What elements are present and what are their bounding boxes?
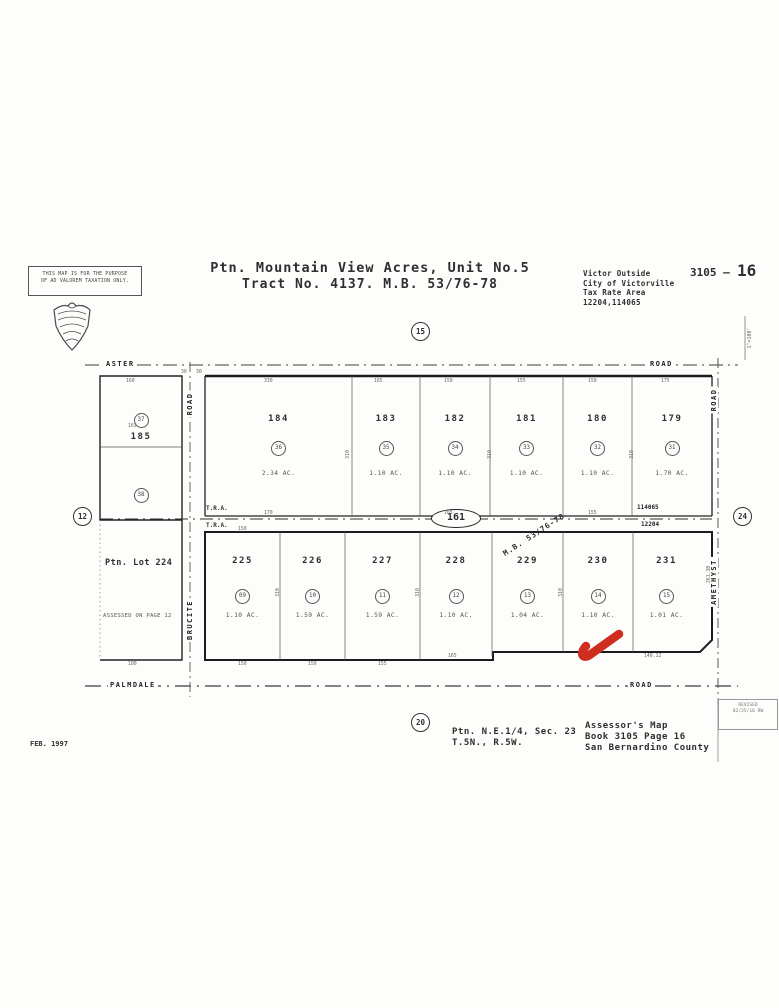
road-label-brucite-road: ROAD [186,391,194,418]
parcel-179: 179 31 1.70 AC. [632,376,712,516]
parcel-227: 227 11 1.59 AC. [345,532,420,655]
disclaimer-box: THIS MAP IS FOR THE PURPOSE OF AD VALORE… [28,266,142,296]
parcel-lot-number: 230 [563,556,633,566]
disclaimer-line2: OF AD VALOREM TAXATION ONLY. [29,278,141,285]
parcel-area: 1.10 AC. [352,470,420,477]
assessor-line1: Assessor's Map [585,721,709,732]
scale-note: 1"=100' [747,327,753,348]
assessor-map-page: THIS MAP IS FOR THE PURPOSE OF AD VALORE… [0,0,779,1008]
parcel-225: 225 09 1.10 AC. [205,532,280,655]
parcel-pin: 14 [591,589,606,604]
parcel-lot-number: 231 [633,556,700,566]
parcel-pin: 34 [448,441,463,456]
parcel-area: 1.59 AC. [280,612,345,619]
county-seal [54,303,90,350]
parcel-area: 1.04 AC. [492,612,563,619]
parcel-pin: 12 [449,589,464,604]
road-label-amethyst: AMETHYST [710,557,718,607]
road-label-palmdale-road: ROAD [628,681,655,689]
tax-line4: 12204,114065 [583,298,675,308]
parcel-lot-number: 183 [352,414,420,424]
parcel-lot-number: 229 [492,556,563,566]
parcel-area: 1.10 AC. [420,470,490,477]
parcel-lot-number: 180 [563,414,632,424]
section-ref-line1: Ptn. N.E.1/4, Sec. 23 [452,727,576,738]
road-label-aster-road: ROAD [648,360,675,368]
parcel-228: 228 12 1.10 AC. [420,532,492,655]
book-page-prefix: 3105 – [690,266,730,279]
parcel-pin: 31 [665,441,680,456]
parcel-pin: 10 [305,589,320,604]
assessor-line3: San Bernardino County [585,743,709,754]
book-page-number: 16 [737,261,756,280]
road-label-brucite: BRUCITE [186,598,194,642]
map-title-line1: Ptn. Mountain View Acres, Unit No.5 [160,260,580,276]
tax-line3: Tax Rate Area [583,288,675,298]
parcel-pin: 11 [375,589,390,604]
tra-label-below: T.R.A. [206,522,228,529]
section-marker-left: 12 [73,507,92,526]
parcel-pin: 09 [235,589,250,604]
map-date: FEB. 1997 [30,740,68,748]
parcel-area: 1.10 AC. [490,470,563,477]
road-label-palmdale: PALMDALE [108,681,158,689]
section-reference: Ptn. N.E.1/4, Sec. 23 T.5N., R.5W. [452,727,576,749]
parcel-231: 231 15 1.01 AC. [633,532,700,655]
revision-box: REVISED 02/25/16 RW [718,699,778,730]
lot-224-label: Ptn. Lot 224 [105,558,172,568]
parcel-pin: 35 [379,441,394,456]
parcel-lot-number: 228 [420,556,492,566]
parcel-224: Ptn. Lot 224 ASSESSED ON PAGE 12 [100,520,182,660]
tax-line2: City of Victorville [583,279,675,289]
parcel-pin: 32 [590,441,605,456]
section-marker-top: 15 [411,322,430,341]
parcel-area: 1.10 AC. [563,470,632,477]
parcel-183: 183 35 1.10 AC. [352,376,420,516]
parcel-230: 230 14 1.10 AC. [563,532,633,655]
parcel-181: 181 33 1.10 AC. [490,376,563,516]
parcel-pin: 36 [271,441,286,456]
parcel-area: 1.10 AC. [205,612,280,619]
section-marker-right: 24 [733,507,752,526]
parcel-area: 1.01 AC. [633,612,700,619]
tax-line1: Victor Outside [583,269,675,279]
road-label-aster: ASTER [104,360,137,368]
parcel-area: 1.10 AC. [420,612,492,619]
parcel-lot-number: 185 [100,432,182,442]
parcel-pin: 33 [519,441,534,456]
parcel-180: 180 32 1.10 AC. [563,376,632,516]
parcel-area: 1.70 AC. [632,470,712,477]
parcel-184: 184 36 2.34 AC. [205,376,352,516]
revision-line2: 02/25/16 RW [719,709,777,715]
parcel-area: 1.59 AC. [345,612,420,619]
parcel-lot-number: 182 [420,414,490,424]
parcel-lot-number: 184 [205,414,352,424]
parcel-area: 2.34 AC. [205,470,352,477]
parcel-229: 229 13 1.04 AC. [492,532,563,655]
parcel-pin: 15 [659,589,674,604]
assessor-map-block: Assessor's Map Book 3105 Page 16 San Ber… [585,721,709,754]
tra-number-bottom: 12204 [641,521,659,528]
parcel-226: 226 10 1.59 AC. [280,532,345,655]
parcel-lot-number: 179 [632,414,712,424]
section-ref-line2: T.5N., R.5W. [452,738,576,749]
parcel-pin: 38 [134,488,149,503]
parcel-lot-number: 226 [280,556,345,566]
parcel-pin: 37 [134,413,149,428]
parcel-lot-number: 181 [490,414,563,424]
parcel-lot-number: 225 [205,556,280,566]
parcel-pin: 13 [520,589,535,604]
assessor-line2: Book 3105 Page 16 [585,732,709,743]
parcel-182: 182 34 1.10 AC. [420,376,490,516]
map-title-line2: Tract No. 4137. M.B. 53/76-78 [160,277,580,292]
parcel-area: 1.10 AC. [563,612,633,619]
parcel-185: 37 185 38 [100,376,182,520]
section-marker-bottom: 20 [411,713,430,732]
tax-rate-area-block: Victor Outside City of Victorville Tax R… [583,269,675,307]
lot-224-note: ASSESSED ON PAGE 12 [103,613,172,619]
disclaimer-line1: THIS MAP IS FOR THE PURPOSE [29,271,141,278]
parcel-lot-number: 227 [345,556,420,566]
